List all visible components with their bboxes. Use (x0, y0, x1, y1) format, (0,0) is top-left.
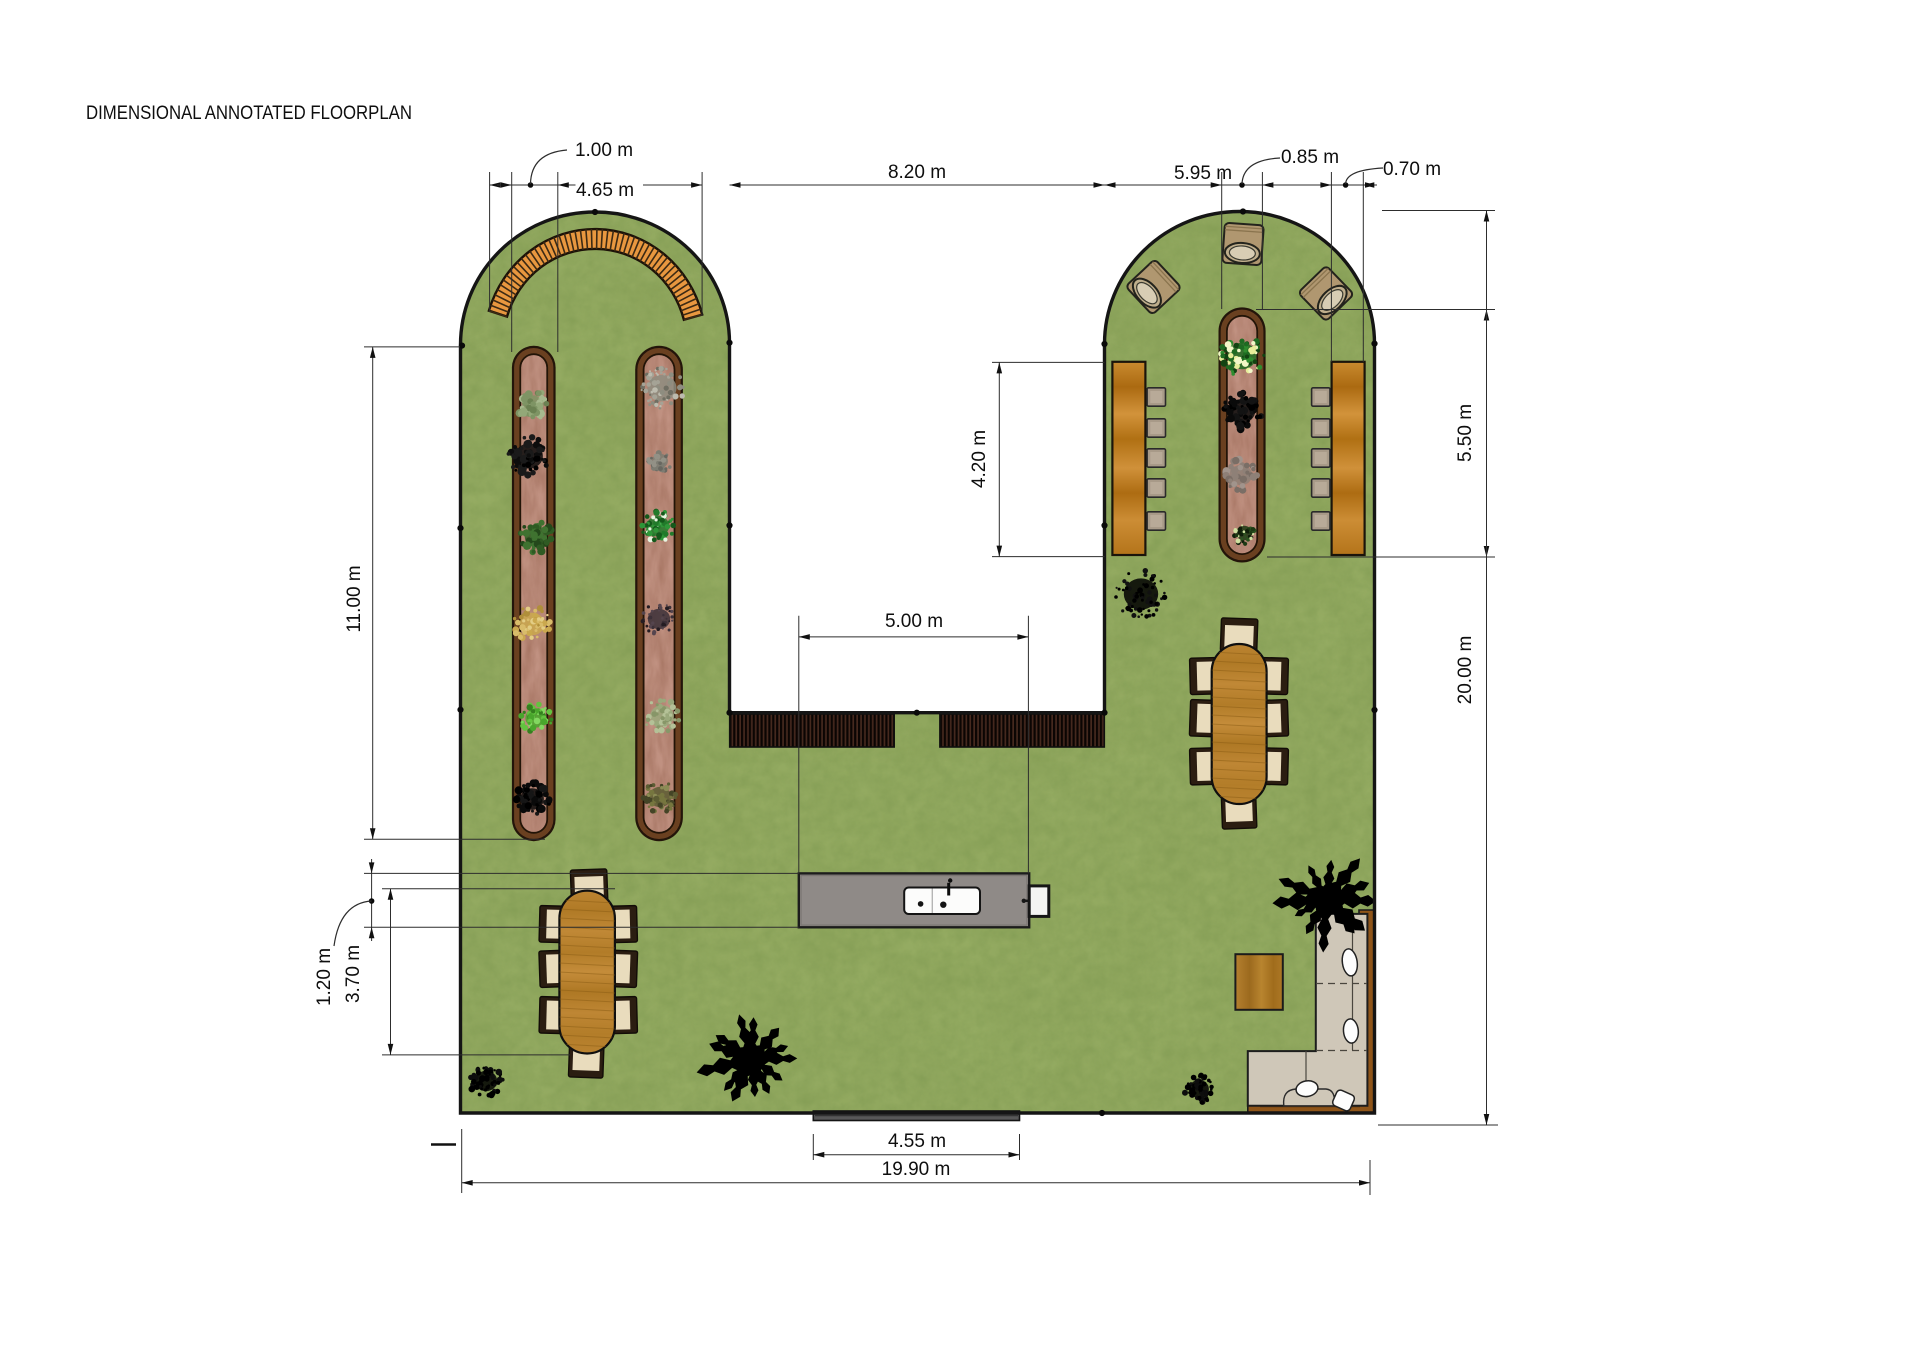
svg-text:0.70 m: 0.70 m (1383, 159, 1441, 180)
svg-text:11.00 m: 11.00 m (344, 565, 365, 632)
svg-text:3.70 m: 3.70 m (343, 945, 364, 1003)
svg-text:1.00 m: 1.00 m (575, 140, 633, 161)
svg-text:0.85 m: 0.85 m (1281, 147, 1339, 168)
svg-text:4.65 m: 4.65 m (576, 180, 634, 201)
svg-text:5.00 m: 5.00 m (885, 611, 943, 632)
svg-text:5.95 m: 5.95 m (1174, 163, 1232, 184)
svg-text:4.20 m: 4.20 m (969, 430, 990, 488)
svg-text:20.00 m: 20.00 m (1455, 636, 1476, 705)
svg-text:8.20 m: 8.20 m (888, 162, 946, 183)
svg-text:19.90 m: 19.90 m (882, 1159, 951, 1180)
svg-text:5.50 m: 5.50 m (1455, 404, 1476, 462)
svg-text:1.20 m: 1.20 m (314, 948, 335, 1006)
svg-text:DIMENSIONAL ANNOTATED FLOORPLA: DIMENSIONAL ANNOTATED FLOORPLAN (86, 102, 412, 124)
svg-text:4.55 m: 4.55 m (888, 1131, 946, 1152)
